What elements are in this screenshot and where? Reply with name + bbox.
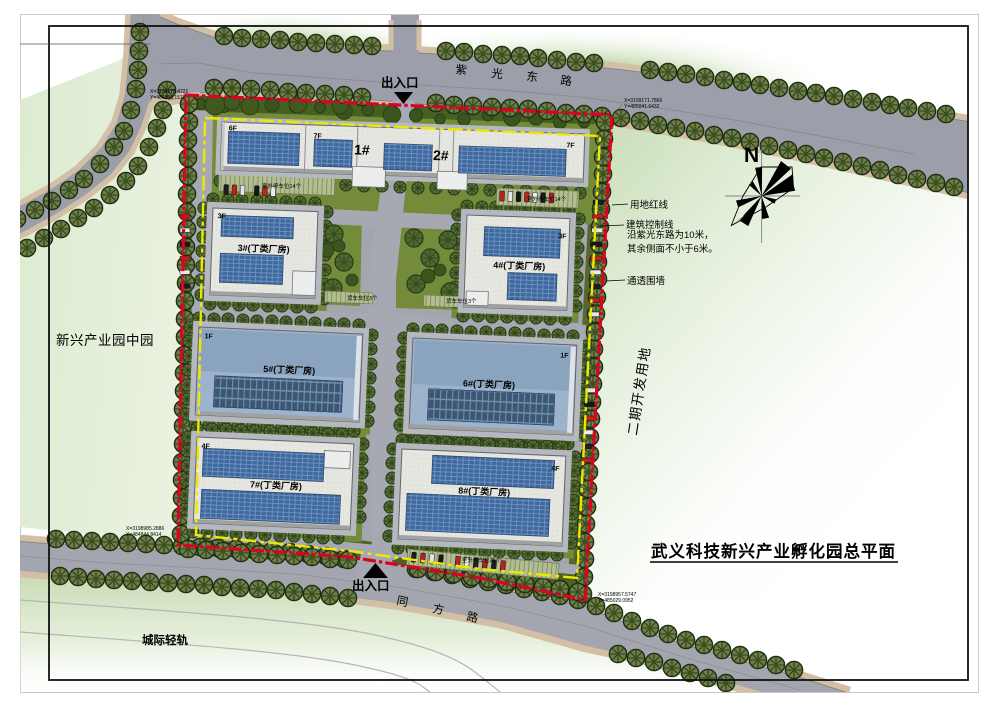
svg-text:6F: 6F	[229, 125, 238, 132]
svg-text:7#(丁类厂房): 7#(丁类厂房)	[250, 478, 302, 491]
svg-text:室外停车位26个: 室外停车位26个	[462, 556, 502, 564]
svg-text:出入口: 出入口	[381, 75, 419, 90]
svg-text:Y=485041.6432: Y=485041.6432	[624, 104, 660, 110]
svg-text:Y=485029.0952: Y=485029.0952	[598, 598, 634, 604]
svg-text:1#: 1#	[354, 141, 370, 158]
svg-text:同: 同	[395, 595, 409, 609]
svg-text:室外停车位14个: 室外停车位14个	[527, 195, 567, 203]
svg-text:3F: 3F	[218, 213, 227, 220]
svg-text:城际轻轨: 城际轻轨	[142, 633, 188, 647]
svg-text:室外停车位14个: 室外停车位14个	[262, 182, 302, 190]
svg-text:4#(丁类厂房): 4#(丁类厂房)	[493, 259, 545, 272]
svg-text:新兴产业园中园: 新兴产业园中园	[56, 333, 154, 348]
svg-text:4F: 4F	[551, 466, 560, 473]
svg-text:N: N	[744, 144, 759, 167]
svg-text:货车车位3个: 货车车位3个	[347, 294, 378, 302]
svg-text:通透围墙: 通透围墙	[627, 275, 666, 287]
svg-text:光: 光	[491, 66, 505, 81]
svg-text:其余侧面不小于6米。: 其余侧面不小于6米。	[627, 243, 718, 255]
svg-text:4F: 4F	[201, 443, 210, 450]
svg-text:2#: 2#	[433, 147, 449, 164]
svg-text:用地红线: 用地红线	[630, 199, 669, 211]
svg-text:货车车位3个: 货车车位3个	[446, 297, 477, 305]
svg-text:东: 东	[526, 70, 539, 84]
svg-text:1F: 1F	[204, 333, 213, 340]
svg-text:紫: 紫	[455, 63, 468, 77]
svg-text:7F: 7F	[566, 142, 575, 149]
svg-text:路: 路	[560, 73, 574, 88]
svg-text:出入口: 出入口	[352, 578, 390, 593]
svg-text:7F: 7F	[313, 133, 322, 140]
svg-text:8#(丁类厂房): 8#(丁类厂房)	[458, 484, 510, 497]
svg-text:6#(丁类厂房): 6#(丁类厂房)	[463, 377, 515, 390]
svg-text:3#(丁类厂房): 3#(丁类厂房)	[237, 242, 289, 255]
svg-text:1F: 1F	[560, 352, 569, 359]
svg-text:3F: 3F	[558, 233, 567, 240]
svg-text:武义科技新兴产业孵化园总平面: 武义科技新兴产业孵化园总平面	[651, 541, 896, 561]
svg-text:沿紫光东路为10米，: 沿紫光东路为10米，	[627, 229, 714, 241]
svg-text:Y=484844.8414: Y=484844.8414	[126, 532, 162, 538]
svg-text:5#(丁类厂房): 5#(丁类厂房)	[263, 363, 315, 376]
